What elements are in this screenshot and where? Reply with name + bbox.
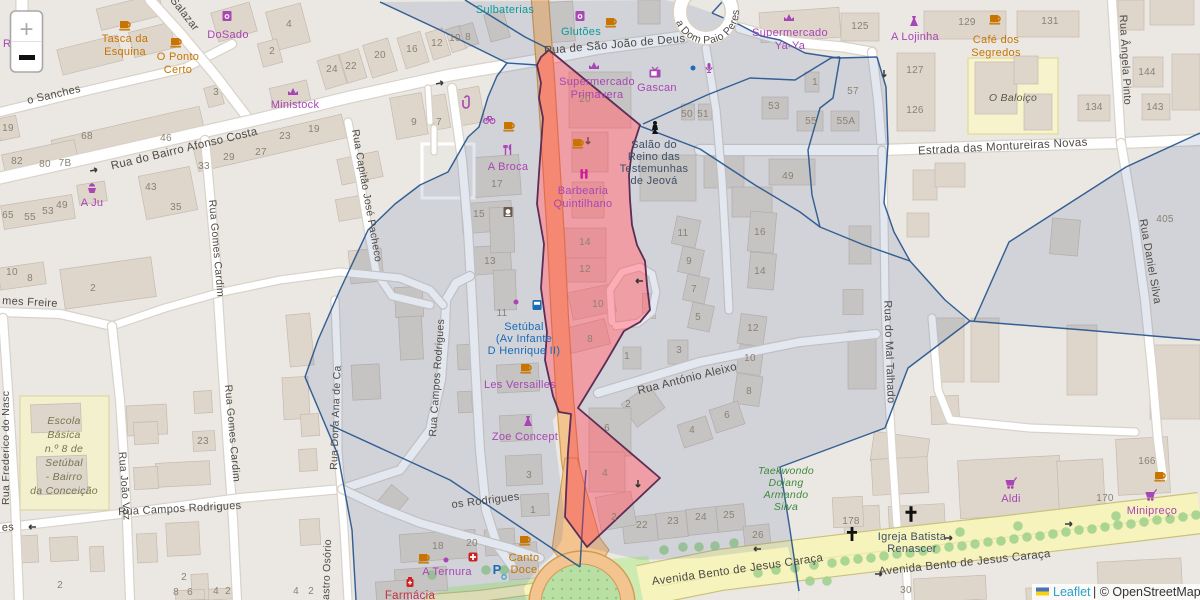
svg-text:143: 143 <box>1146 102 1164 113</box>
svg-text:4: 4 <box>213 586 219 597</box>
svg-text:23: 23 <box>279 131 291 142</box>
svg-text:A Ternura: A Ternura <box>422 566 472 578</box>
svg-text:178: 178 <box>842 516 860 527</box>
svg-text:da Conceição: da Conceição <box>30 485 98 497</box>
svg-text:Doce: Doce <box>511 564 538 576</box>
svg-text:1: 1 <box>812 77 818 88</box>
svg-text:19: 19 <box>2 123 14 134</box>
svg-text:43: 43 <box>145 182 157 193</box>
svg-text:Quintilhano: Quintilhano <box>554 198 613 210</box>
svg-text:6: 6 <box>724 410 730 421</box>
svg-text:Glutões: Glutões <box>561 26 601 38</box>
svg-text:166: 166 <box>1138 456 1156 467</box>
svg-text:6: 6 <box>187 587 193 598</box>
svg-text:24: 24 <box>695 512 707 523</box>
svg-text:Leaflet: Leaflet <box>1053 585 1091 599</box>
svg-text:+: + <box>19 16 33 43</box>
svg-text:80: 80 <box>39 159 51 170</box>
svg-text:8: 8 <box>587 334 593 345</box>
svg-text:25: 25 <box>723 510 735 521</box>
svg-text:Segredos: Segredos <box>971 47 1021 59</box>
svg-text:144: 144 <box>1138 67 1156 78</box>
svg-text:astro Osório: astro Osório <box>320 539 334 600</box>
svg-text:Salão do: Salão do <box>631 139 677 151</box>
svg-text:O Baloiço: O Baloiço <box>989 92 1037 104</box>
svg-text:13: 13 <box>484 256 496 267</box>
svg-text:Supermercado: Supermercado <box>559 76 635 88</box>
svg-text:8: 8 <box>27 273 33 284</box>
svg-text:23: 23 <box>197 436 209 447</box>
svg-text:Zoe Concept: Zoe Concept <box>492 431 558 443</box>
svg-text:Supermercado: Supermercado <box>752 27 828 39</box>
svg-text:11: 11 <box>678 228 689 239</box>
svg-text:16: 16 <box>754 227 766 238</box>
svg-text:22: 22 <box>345 61 357 72</box>
svg-text:24: 24 <box>326 64 338 75</box>
svg-text:- Bairro: - Bairro <box>46 471 83 483</box>
svg-text:Dojang: Dojang <box>768 477 803 489</box>
svg-text:68: 68 <box>81 131 93 142</box>
svg-text:27: 27 <box>255 147 267 158</box>
svg-text:Tasca da: Tasca da <box>102 33 149 45</box>
svg-text:35: 35 <box>170 202 182 213</box>
svg-text:7B: 7B <box>59 158 72 169</box>
svg-text:10: 10 <box>449 33 461 44</box>
svg-text:4: 4 <box>602 468 608 479</box>
svg-text:26: 26 <box>752 530 764 541</box>
svg-text:9: 9 <box>686 256 692 267</box>
svg-text:3: 3 <box>676 345 682 356</box>
svg-text:2: 2 <box>90 283 96 294</box>
svg-text:127: 127 <box>906 65 924 76</box>
svg-text:19: 19 <box>308 124 320 135</box>
svg-text:Les Versailles: Les Versailles <box>484 379 556 391</box>
svg-text:49: 49 <box>56 200 68 211</box>
svg-text:134: 134 <box>1085 102 1103 113</box>
svg-text:22: 22 <box>636 520 648 531</box>
svg-text:Básica: Básica <box>47 429 80 441</box>
svg-text:Setúbal: Setúbal <box>45 457 83 469</box>
svg-text:6: 6 <box>604 423 610 434</box>
svg-text:Ministock: Ministock <box>271 99 320 111</box>
svg-text:33: 33 <box>198 161 210 172</box>
svg-text:Esquina: Esquina <box>104 46 146 58</box>
svg-text:82: 82 <box>11 156 23 167</box>
svg-text:15: 15 <box>473 209 485 220</box>
svg-text:51: 51 <box>697 109 709 120</box>
svg-text:4: 4 <box>286 19 292 30</box>
svg-text:Minipreço: Minipreço <box>1127 505 1177 517</box>
svg-text:Renascer: Renascer <box>887 543 937 555</box>
svg-text:57: 57 <box>847 86 859 97</box>
svg-text:30: 30 <box>900 585 912 596</box>
svg-text:4: 4 <box>293 586 299 597</box>
svg-text:Farmácia: Farmácia <box>385 590 436 600</box>
svg-text:P: P <box>493 562 502 577</box>
svg-text:170: 170 <box>1096 493 1114 504</box>
svg-text:126: 126 <box>906 105 924 116</box>
svg-text:9: 9 <box>411 117 417 128</box>
svg-text:2: 2 <box>625 399 631 410</box>
svg-text:55: 55 <box>24 212 36 223</box>
svg-text:Reino das: Reino das <box>628 151 680 163</box>
svg-text:53: 53 <box>42 206 54 217</box>
svg-text:Canto: Canto <box>509 552 540 564</box>
svg-text:Testemunhas: Testemunhas <box>620 163 689 175</box>
svg-text:12: 12 <box>579 264 591 275</box>
svg-text:55: 55 <box>805 116 817 127</box>
svg-text:Barbearia: Barbearia <box>558 185 609 197</box>
svg-text:16: 16 <box>406 44 418 55</box>
svg-text:3: 3 <box>526 470 532 481</box>
svg-text:2: 2 <box>225 586 231 597</box>
svg-text:49: 49 <box>782 171 794 182</box>
svg-text:4: 4 <box>689 425 695 436</box>
svg-text:7: 7 <box>436 117 442 128</box>
svg-text:Café dos: Café dos <box>973 34 1020 46</box>
svg-text:Igreja Batista: Igreja Batista <box>878 531 947 543</box>
svg-text:Taekwondo: Taekwondo <box>758 465 814 477</box>
svg-text:12: 12 <box>431 38 443 49</box>
svg-text:Gascan: Gascan <box>637 82 677 94</box>
svg-text:es: es <box>2 521 15 534</box>
svg-text:10: 10 <box>592 299 604 310</box>
svg-text:Rua Frederico do Nasc: Rua Frederico do Nasc <box>0 391 12 505</box>
svg-text:18: 18 <box>432 541 444 552</box>
svg-text:50: 50 <box>681 109 693 120</box>
svg-text:Silva: Silva <box>774 501 798 513</box>
svg-text:12: 12 <box>747 323 759 334</box>
svg-text:Sulbaterias: Sulbaterias <box>476 4 535 16</box>
svg-text:17: 17 <box>491 179 503 190</box>
svg-text:14: 14 <box>754 266 766 277</box>
svg-text:8: 8 <box>746 386 752 397</box>
svg-text:131: 131 <box>1041 16 1059 27</box>
svg-text:129: 129 <box>958 17 976 28</box>
svg-text:2: 2 <box>611 512 617 523</box>
svg-text:20: 20 <box>579 94 591 105</box>
svg-text:DoSado: DoSado <box>207 29 249 41</box>
svg-text:Certo: Certo <box>164 64 192 76</box>
svg-text:| © OpenStreetMap: | © OpenStreetMap <box>1093 585 1200 599</box>
svg-text:53: 53 <box>768 101 780 112</box>
svg-text:de Jeová: de Jeová <box>630 175 678 187</box>
svg-text:A Ju: A Ju <box>81 197 104 209</box>
svg-text:405: 405 <box>1156 214 1174 225</box>
svg-text:Setúbal: Setúbal <box>504 321 543 333</box>
svg-text:23: 23 <box>667 516 679 527</box>
svg-text:2: 2 <box>57 580 63 591</box>
svg-text:29: 29 <box>223 152 235 163</box>
svg-text:1: 1 <box>530 505 536 516</box>
svg-text:46: 46 <box>160 133 172 144</box>
svg-text:3: 3 <box>213 87 219 98</box>
svg-text:7: 7 <box>691 284 697 295</box>
svg-text:14: 14 <box>579 237 591 248</box>
svg-text:O Ponto: O Ponto <box>157 51 199 63</box>
svg-text:8: 8 <box>173 587 179 598</box>
svg-text:5: 5 <box>695 312 701 323</box>
svg-text:n.º 8 de: n.º 8 de <box>45 443 83 455</box>
svg-text:8: 8 <box>465 32 471 43</box>
svg-text:A Lojinha: A Lojinha <box>891 31 940 43</box>
svg-text:10: 10 <box>744 353 756 364</box>
svg-text:11: 11 <box>497 308 508 319</box>
svg-text:Escola: Escola <box>47 415 80 427</box>
svg-text:55A: 55A <box>837 116 856 127</box>
svg-text:D Henrique II): D Henrique II) <box>488 345 561 357</box>
svg-text:65: 65 <box>2 210 14 221</box>
svg-text:Ya-Ya: Ya-Ya <box>775 40 806 52</box>
svg-text:2: 2 <box>181 572 187 583</box>
svg-text:2: 2 <box>269 46 275 57</box>
svg-text:20: 20 <box>374 50 386 61</box>
svg-text:Aldi: Aldi <box>1001 493 1021 505</box>
svg-text:1: 1 <box>624 351 630 362</box>
svg-text:(Av Infante: (Av Infante <box>496 333 552 345</box>
svg-text:125: 125 <box>851 21 869 32</box>
svg-text:Armando: Armando <box>763 489 809 501</box>
svg-text:20: 20 <box>466 538 478 549</box>
svg-text:10: 10 <box>6 267 18 278</box>
svg-text:2: 2 <box>308 586 314 597</box>
svg-text:A Broca: A Broca <box>488 161 529 173</box>
